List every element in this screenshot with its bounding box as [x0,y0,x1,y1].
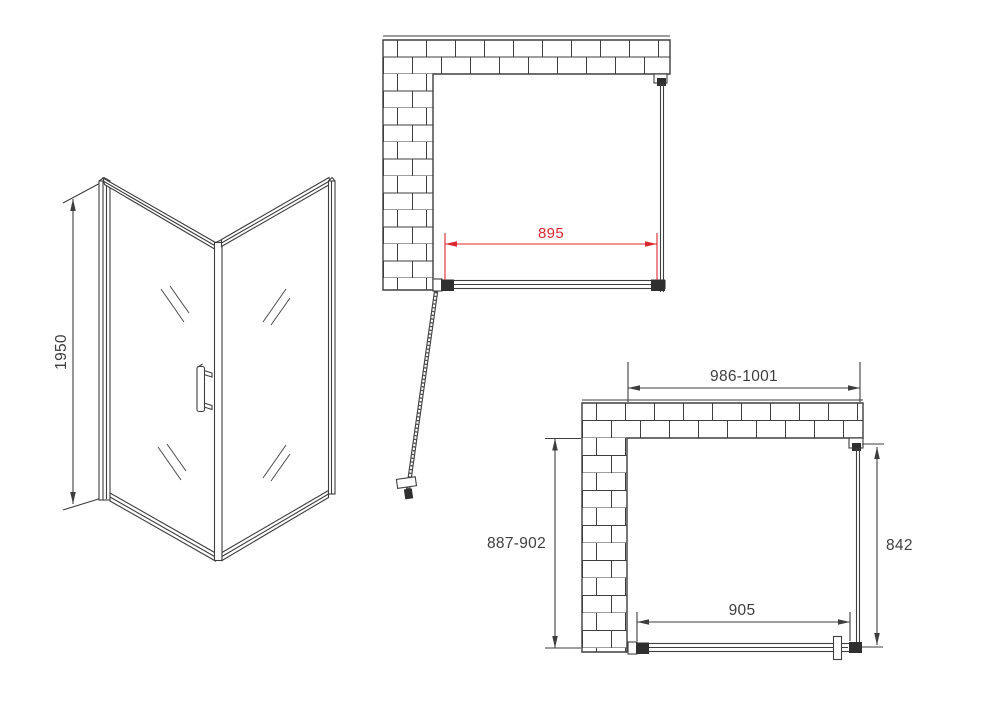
wall-profile [99,178,110,501]
door-handle-plan [834,637,842,660]
hinge-bracket [433,279,442,291]
door-width-label: 895 [538,225,564,242]
door-hinge [636,643,649,655]
page-background [0,0,1000,707]
corner-connector [849,642,862,653]
height-dimension-label: 1950 [53,334,70,370]
overall-width-label: 986-1001 [710,368,778,385]
side-panel-depth-label: 842 [886,537,913,554]
technical-drawing-canvas: 1950 [0,0,1000,707]
door-hinge [441,280,454,292]
wall-opening-label: 887-902 [487,535,546,552]
corner-connector [651,280,665,292]
side-panel-profile [329,178,336,495]
hinge-bracket [628,642,637,654]
door-width-label: 905 [729,602,756,619]
corner-post [215,240,223,561]
